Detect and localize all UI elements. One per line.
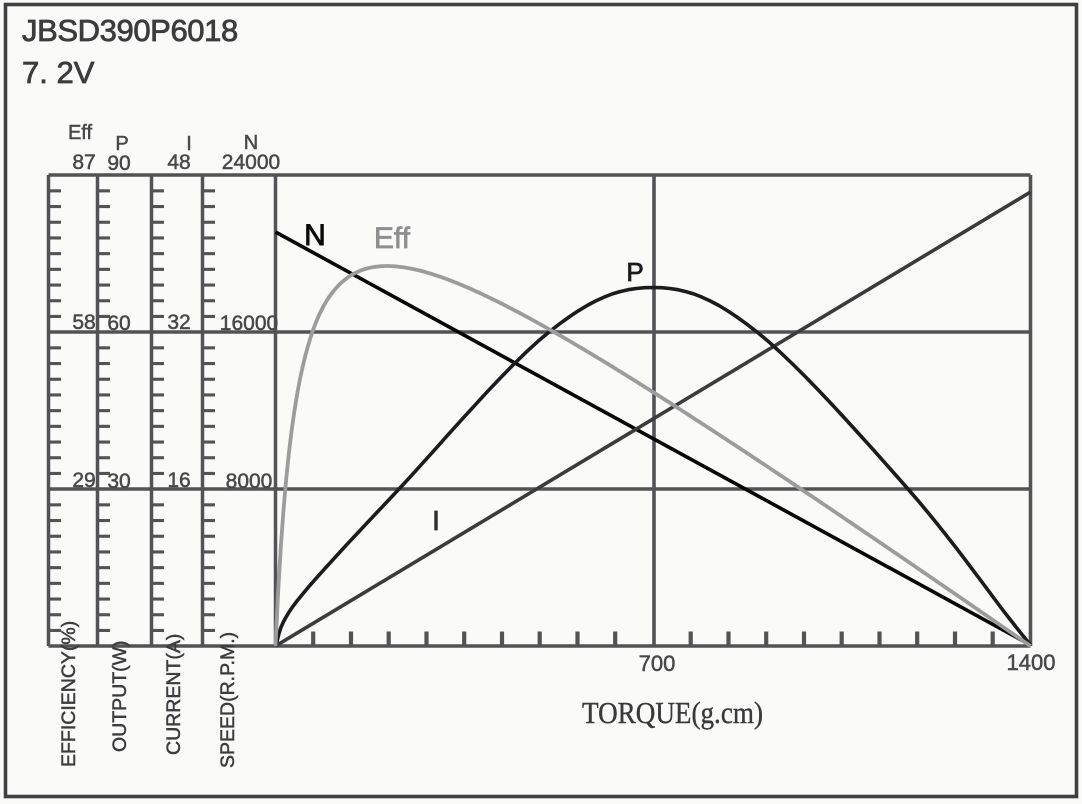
svg-text:30: 30 bbox=[107, 470, 130, 493]
svg-text:58: 58 bbox=[72, 311, 95, 334]
svg-text:48: 48 bbox=[167, 151, 190, 174]
svg-text:29: 29 bbox=[72, 469, 95, 492]
svg-text:TORQUE(g.cm): TORQUE(g.cm) bbox=[582, 695, 763, 730]
svg-text:OUTPUT(W): OUTPUT(W) bbox=[109, 640, 131, 752]
svg-text:90: 90 bbox=[107, 152, 130, 175]
svg-text:32: 32 bbox=[167, 311, 190, 334]
svg-text:Eff: Eff bbox=[68, 122, 93, 144]
svg-text:EFFICIENCY(%): EFFICIENCY(%) bbox=[58, 621, 80, 767]
svg-text:I: I bbox=[432, 505, 440, 536]
svg-text:N: N bbox=[304, 219, 326, 252]
svg-text:1400: 1400 bbox=[1007, 650, 1056, 675]
svg-text:87: 87 bbox=[72, 151, 95, 174]
svg-text:Eff: Eff bbox=[374, 222, 411, 255]
svg-text:JBSD390P6018: JBSD390P6018 bbox=[22, 13, 238, 48]
svg-text:7. 2V: 7. 2V bbox=[22, 55, 95, 90]
svg-text:P: P bbox=[626, 257, 643, 287]
svg-text:24000: 24000 bbox=[222, 151, 280, 174]
svg-text:8000: 8000 bbox=[226, 470, 273, 493]
svg-text:16: 16 bbox=[167, 469, 190, 492]
svg-text:16000: 16000 bbox=[220, 312, 278, 335]
svg-text:CURRENT(A): CURRENT(A) bbox=[163, 634, 185, 755]
svg-text:700: 700 bbox=[639, 651, 676, 676]
svg-text:SPEED(R.P.M.): SPEED(R.P.M.) bbox=[217, 632, 239, 768]
svg-text:60: 60 bbox=[107, 312, 130, 335]
